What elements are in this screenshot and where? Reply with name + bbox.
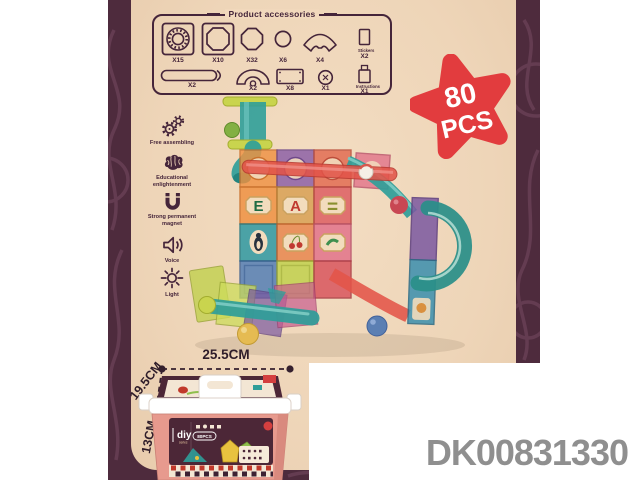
accessory-ball-piece: X6: [274, 30, 292, 65]
letter-tile-a: A: [290, 198, 301, 215]
title-dash-right: [324, 13, 337, 15]
box-series-text: series: [179, 441, 188, 445]
right-column: [408, 198, 438, 325]
octagon-square-icon: [201, 22, 235, 56]
sticker-sheet-icon: [358, 28, 371, 46]
accessory-qty: X2: [358, 54, 371, 61]
box-top-tag: [263, 375, 276, 383]
box-age-badge: [264, 422, 273, 431]
accessory-qty: X4: [301, 58, 339, 65]
accessory-arch-piece: X2: [234, 66, 272, 93]
bearing-square-icon: [161, 22, 195, 56]
toy-photo: E A =: [180, 92, 480, 362]
box-photo: Magnetic diy series: [135, 370, 305, 480]
accessory-qty: X15: [161, 58, 195, 65]
dimension-width: 25.5CM: [186, 347, 266, 362]
code-band: DK00831330: [309, 363, 640, 480]
accessory-qty: X32: [239, 58, 265, 65]
accessory-connector-piece: X1: [317, 69, 334, 93]
accessories-title: Product accessories: [225, 9, 320, 19]
accessory-rectangle-tile: X8: [275, 67, 305, 93]
product-sheet: Product accessories X15: [0, 0, 640, 480]
accessory-stickers: Stickers X2: [358, 28, 371, 61]
product-code: DK00831330: [426, 432, 628, 474]
accessories-panel: Product accessories X15: [152, 14, 392, 95]
arch-icon: [234, 66, 272, 86]
box-lid: [149, 398, 291, 414]
fan-icon: [301, 28, 339, 54]
box-mini-panel: [239, 446, 269, 463]
letter-tile-e: E: [253, 198, 263, 215]
tube-icon: [160, 68, 224, 83]
letter-tile-equals: =: [327, 197, 338, 218]
title-dash-left: [207, 13, 220, 15]
ball-icon: [274, 30, 292, 48]
accessories-title-row: Product accessories: [154, 9, 390, 19]
connector-icon: [317, 69, 334, 86]
green-ball: [225, 123, 240, 138]
accessory-bearing-square-tile: X15: [161, 22, 195, 65]
rectangle-icon: [275, 67, 305, 86]
tile-row-pictures: [240, 224, 351, 261]
octagon-icon: [239, 26, 265, 52]
accessory-qty: X6: [274, 58, 292, 65]
booklet-icon: [356, 64, 373, 84]
accessory-long-tube: X2: [160, 68, 224, 90]
accessory-octagon-square-tile: X10: [201, 22, 235, 65]
accessory-fan-piece: X4: [301, 28, 339, 65]
red-ball: [390, 196, 408, 214]
blue-ball: [367, 316, 387, 336]
box-diy-text: diy: [177, 430, 192, 441]
accessory-qty: X10: [201, 58, 235, 65]
accessory-qty: X2: [160, 83, 224, 90]
box-pcs-text: 80PCS: [197, 434, 212, 439]
accessory-octagon-piece: X32: [239, 26, 265, 65]
accessory-instructions: Instructions X1: [356, 64, 373, 96]
